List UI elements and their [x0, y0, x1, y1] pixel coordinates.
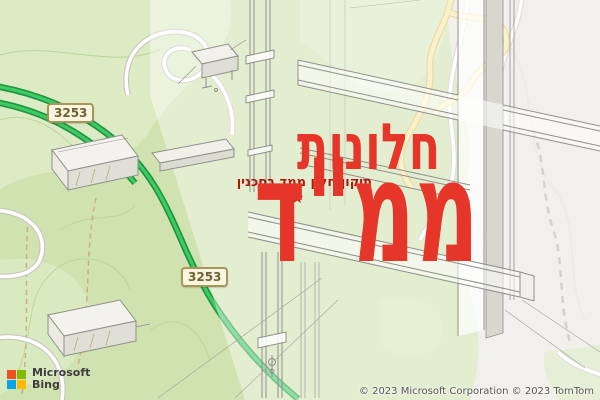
road-shield-3253-b: 3253	[181, 267, 228, 287]
bing-logo[interactable]: Microsoft Bing	[7, 367, 90, 392]
bracket-detail	[178, 40, 246, 92]
profile-section-b	[48, 300, 150, 356]
logo-product: Bing	[32, 379, 90, 392]
map-screenshot: 3253 3253 תיקון חלון ממד בסכנין ★ חלונות…	[0, 0, 600, 400]
profile-bar	[152, 139, 234, 171]
microsoft-logo-icon	[7, 370, 26, 389]
profile-section-a	[52, 135, 138, 190]
watermark-title-line2: ממ"ד	[254, 142, 479, 284]
road-shield-3253-a: 3253	[47, 103, 94, 123]
map-attribution: © 2023 Microsoft Corporation © 2023 TomT…	[359, 386, 594, 397]
